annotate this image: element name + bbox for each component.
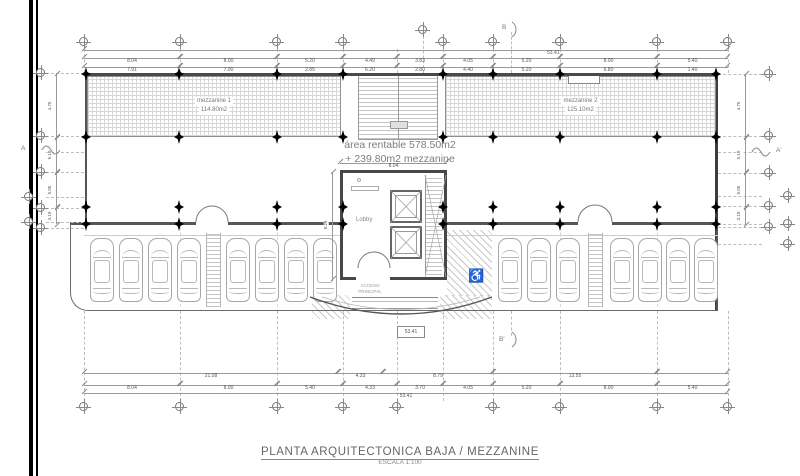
parked-car bbox=[148, 238, 172, 302]
grid-bubble bbox=[392, 402, 401, 411]
mezzanine-1-size: 114.80m2 bbox=[199, 106, 229, 115]
dimension-segment: 21.08 bbox=[84, 373, 338, 374]
grid-centerline bbox=[718, 136, 762, 137]
mezzanine-2-label: mezzanine 2 125.10m2 bbox=[446, 97, 715, 115]
drawing-title: PLANTA ARQUITECTONICA BAJA / MEZZANINE bbox=[200, 442, 600, 460]
grid-centerline bbox=[277, 311, 278, 401]
lobby-height-dimension: 8.29 bbox=[332, 172, 333, 278]
grid-centerline bbox=[84, 49, 85, 73]
dimension-segment: 5.05 bbox=[56, 172, 57, 207]
dimension-label: 5.10 bbox=[48, 149, 53, 160]
dimension-segment: 4.49 bbox=[343, 58, 397, 59]
grid-bubble bbox=[555, 37, 564, 46]
wheelchair-icon: ♿ bbox=[468, 268, 484, 284]
grid-bubble bbox=[36, 167, 45, 176]
dimension-segment: 6.80 bbox=[560, 67, 657, 68]
grid-bubble bbox=[24, 217, 33, 226]
section-marker-b: B bbox=[502, 24, 506, 31]
dimension-label: 8.29 bbox=[324, 220, 329, 231]
grid-bubble bbox=[175, 37, 184, 46]
car-windshield bbox=[180, 250, 198, 258]
dimension-segment: 8.04 bbox=[84, 58, 180, 59]
dimension-segment: 53.41 bbox=[84, 50, 728, 51]
grid-bubble bbox=[652, 37, 661, 46]
parking-walkway bbox=[588, 233, 603, 307]
car-windshield bbox=[613, 250, 631, 258]
section-marker-a: A bbox=[21, 145, 25, 152]
car-rear-window bbox=[316, 288, 334, 294]
dimension-segment: 4.75 bbox=[56, 74, 57, 137]
grid-bubble bbox=[764, 69, 773, 78]
car-windshield bbox=[229, 250, 247, 258]
lobby-core: Lobby bbox=[340, 170, 447, 280]
grid-bubble bbox=[438, 37, 447, 46]
parked-car bbox=[226, 238, 250, 302]
car-roof bbox=[181, 260, 197, 283]
dimension-segment: 2.80 bbox=[397, 67, 443, 68]
dimension-segment: 5.10 bbox=[56, 137, 57, 172]
access-label-line2: PRINCIPAL bbox=[346, 289, 394, 295]
grid-bubble bbox=[79, 37, 88, 46]
grid-centerline bbox=[718, 224, 762, 225]
car-rear-window bbox=[229, 288, 247, 294]
boxed-dimension: 53.41 bbox=[397, 326, 425, 338]
dimension-segment: 5.40 bbox=[657, 385, 728, 386]
dimension-segment: 3.83 bbox=[397, 58, 443, 59]
drawing-sheet: mezzanine 1 114.80m2 mezzanine 2 125.10m… bbox=[0, 0, 800, 476]
dimension-label: 5.05 bbox=[737, 184, 742, 195]
dimension-segment: 5.20 bbox=[277, 58, 343, 59]
grid-centerline bbox=[718, 227, 762, 228]
grid-bubble bbox=[652, 402, 661, 411]
grid-bubble bbox=[764, 222, 773, 231]
area-line-1: área rentable 578.50m2 bbox=[290, 139, 510, 153]
stall-head-line bbox=[447, 235, 718, 236]
grid-bubble bbox=[723, 37, 732, 46]
grid-centerline bbox=[718, 244, 762, 245]
section-marker-a-prime: A' bbox=[776, 147, 782, 154]
dimension-label: 5.10 bbox=[737, 149, 742, 160]
column-marker bbox=[711, 200, 721, 214]
car-rear-window bbox=[258, 288, 276, 294]
dimension-segment: 4.05 bbox=[443, 385, 493, 386]
mezzanine-2-name: mezzanine 2 bbox=[561, 97, 599, 106]
section-b-arc bbox=[512, 22, 516, 37]
car-windshield bbox=[93, 250, 111, 258]
grid-bubble bbox=[338, 402, 347, 411]
grid-centerline bbox=[46, 208, 84, 209]
car-windshield bbox=[641, 250, 659, 258]
dimension-segment: 1.40 bbox=[657, 67, 728, 68]
grid-bubble bbox=[36, 68, 45, 77]
car-roof bbox=[560, 260, 576, 283]
grid-bubble bbox=[36, 223, 45, 232]
grid-centerline bbox=[560, 311, 561, 401]
reception-chair bbox=[357, 178, 361, 182]
car-roof bbox=[614, 260, 630, 283]
car-roof bbox=[288, 260, 304, 283]
dimension-segment: 5.05 bbox=[745, 172, 746, 207]
dimension-label: 3.10 bbox=[737, 210, 742, 221]
car-roof bbox=[698, 260, 714, 283]
dimension-segment: 4.33 bbox=[343, 385, 397, 386]
dimension-segment: 8.79 bbox=[383, 373, 493, 374]
grid-centerline bbox=[46, 222, 84, 223]
wall-niche bbox=[568, 76, 600, 84]
stair-landing bbox=[390, 121, 408, 129]
grid-centerline bbox=[46, 228, 84, 229]
grid-bubble bbox=[79, 402, 88, 411]
grid-bubble bbox=[764, 201, 773, 210]
grid-bubble bbox=[783, 219, 792, 228]
car-roof bbox=[502, 260, 518, 283]
column-marker bbox=[652, 200, 662, 214]
parked-car bbox=[177, 238, 201, 302]
car-rear-window bbox=[530, 288, 548, 294]
grid-centerline bbox=[718, 74, 762, 75]
grid-centerline bbox=[84, 311, 85, 401]
rentable-area-text: área rentable 578.50m2 + 239.80m2 mezzan… bbox=[290, 139, 510, 166]
mezzanine-1-area: mezzanine 1 114.80m2 bbox=[87, 76, 341, 137]
car-windshield bbox=[258, 250, 276, 258]
car-windshield bbox=[122, 250, 140, 258]
parked-car bbox=[119, 238, 143, 302]
dimension-segment: 8.00 bbox=[560, 58, 657, 59]
dimension-segment: 4.75 bbox=[745, 74, 746, 137]
grid-bubble bbox=[418, 25, 427, 34]
dimension-segment bbox=[657, 373, 728, 374]
parking-walkway bbox=[206, 233, 221, 307]
grid-centerline bbox=[343, 311, 344, 401]
central-staircase bbox=[358, 76, 438, 140]
dimension-segment: 5.20 bbox=[493, 58, 560, 59]
car-windshield bbox=[559, 250, 577, 258]
mezzanine-1-label: mezzanine 1 114.80m2 bbox=[88, 97, 340, 115]
grid-centerline bbox=[718, 173, 762, 174]
car-rear-window bbox=[287, 288, 305, 294]
parked-car bbox=[666, 238, 690, 302]
column-marker bbox=[555, 200, 565, 214]
grid-centerline bbox=[397, 311, 398, 401]
grid-centerline bbox=[443, 311, 444, 401]
car-rear-window bbox=[122, 288, 140, 294]
grid-centerline bbox=[657, 311, 658, 401]
grid-centerline bbox=[46, 197, 84, 198]
west-double-door bbox=[196, 206, 228, 222]
car-windshield bbox=[501, 250, 519, 258]
car-roof bbox=[94, 260, 110, 283]
grid-bubble bbox=[488, 402, 497, 411]
car-rear-window bbox=[697, 288, 715, 294]
reception-desk bbox=[351, 186, 379, 191]
grid-bubble bbox=[36, 203, 45, 212]
mezzanine-1-name: mezzanine 1 bbox=[195, 97, 233, 106]
grid-bubble bbox=[488, 37, 497, 46]
car-rear-window bbox=[669, 288, 687, 294]
dimension-segment: 4.33 bbox=[338, 373, 383, 374]
dimension-segment: 7.00 bbox=[180, 67, 277, 68]
dimension-segment: 5.40 bbox=[657, 58, 728, 59]
car-roof bbox=[230, 260, 246, 283]
elevator-2 bbox=[390, 226, 422, 259]
mezzanine-2-size: 125.10m2 bbox=[565, 106, 596, 115]
car-rear-window bbox=[180, 288, 198, 294]
dimension-segment: 4.40 bbox=[443, 67, 493, 68]
grid-bubble bbox=[783, 239, 792, 248]
dimension-segment: 8.00 bbox=[180, 385, 277, 386]
column-marker bbox=[272, 200, 282, 214]
sheet-edge-line bbox=[29, 0, 33, 476]
parked-car bbox=[284, 238, 308, 302]
car-roof bbox=[670, 260, 686, 283]
car-windshield bbox=[697, 250, 715, 258]
car-roof bbox=[259, 260, 275, 283]
car-windshield bbox=[530, 250, 548, 258]
car-windshield bbox=[151, 250, 169, 258]
car-rear-window bbox=[613, 288, 631, 294]
car-rear-window bbox=[151, 288, 169, 294]
dimension-label: 4.75 bbox=[737, 100, 742, 111]
grid-bubble bbox=[36, 131, 45, 140]
car-rear-window bbox=[501, 288, 519, 294]
section-b-line bbox=[511, 311, 512, 336]
dimension-segment: 3.10 bbox=[56, 207, 57, 224]
car-roof bbox=[642, 260, 658, 283]
car-roof bbox=[123, 260, 139, 283]
dimension-segment: 13.55 bbox=[493, 373, 657, 374]
grid-bubble bbox=[272, 37, 281, 46]
mezzanine-2-area: mezzanine 2 125.10m2 bbox=[445, 76, 716, 137]
stair-treads bbox=[359, 76, 437, 139]
section-b-prime-arc bbox=[512, 332, 516, 347]
dimension-segment: 5.40 bbox=[277, 385, 343, 386]
elevator-1 bbox=[390, 190, 422, 223]
car-rear-window bbox=[559, 288, 577, 294]
car-roof bbox=[531, 260, 547, 283]
parked-car bbox=[638, 238, 662, 302]
grid-centerline bbox=[718, 206, 762, 207]
column-marker bbox=[81, 200, 91, 214]
entrance-steps bbox=[352, 297, 438, 309]
dimension-label: 4.75 bbox=[48, 100, 53, 111]
grid-centerline bbox=[46, 136, 84, 137]
east-double-door bbox=[578, 205, 612, 222]
grid-bubble bbox=[175, 402, 184, 411]
parked-car bbox=[90, 238, 114, 302]
lobby-door-opening bbox=[356, 274, 390, 280]
car-windshield bbox=[287, 250, 305, 258]
parked-car bbox=[694, 238, 718, 302]
dimension-label: 5.05 bbox=[48, 184, 53, 195]
dimension-segment: 8.00 bbox=[560, 385, 657, 386]
dimension-segment: 53.41 bbox=[84, 393, 728, 394]
grid-centerline bbox=[180, 311, 181, 401]
parked-car bbox=[610, 238, 634, 302]
car-roof bbox=[152, 260, 168, 283]
parked-car bbox=[556, 238, 580, 302]
grid-bubble bbox=[555, 402, 564, 411]
car-windshield bbox=[669, 250, 687, 258]
parked-car bbox=[527, 238, 551, 302]
parked-car bbox=[498, 238, 522, 302]
dimension-segment: 5.20 bbox=[493, 385, 560, 386]
grid-bubble bbox=[723, 402, 732, 411]
dimension-segment: 8.00 bbox=[180, 58, 277, 59]
dimension-segment: 4.05 bbox=[443, 58, 493, 59]
lobby-label: Lobby bbox=[356, 217, 372, 223]
grid-bubble bbox=[783, 191, 792, 200]
dimension-segment: 7.91 bbox=[84, 67, 180, 68]
grid-bubble bbox=[24, 192, 33, 201]
grid-bubble bbox=[764, 131, 773, 140]
column-marker bbox=[488, 200, 498, 214]
grid-bubble bbox=[764, 168, 773, 177]
dimension-segment: 3.70 bbox=[397, 385, 443, 386]
car-rear-window bbox=[93, 288, 111, 294]
drawing-scale: ESCALA 1:100 bbox=[200, 459, 600, 466]
grid-centerline bbox=[718, 196, 762, 197]
dimension-segment: 2.85 bbox=[277, 67, 343, 68]
grid-bubble bbox=[272, 402, 281, 411]
main-access-label: ACCESO PRINCIPAL bbox=[346, 283, 394, 296]
area-line-2: + 239.80m2 mezzanine bbox=[290, 153, 510, 167]
car-rear-window bbox=[641, 288, 659, 294]
column-marker bbox=[174, 200, 184, 214]
lobby-staircase bbox=[425, 175, 442, 275]
grid-centerline bbox=[46, 73, 84, 74]
dimension-segment: 8.04 bbox=[84, 385, 180, 386]
parked-car bbox=[313, 238, 337, 302]
grid-centerline bbox=[493, 311, 494, 401]
dimension-segment: 5.20 bbox=[493, 67, 560, 68]
section-marker-b-prime: B' bbox=[499, 336, 505, 343]
dimension-segment: 6.20 bbox=[343, 67, 397, 68]
dimension-segment: 5.10 bbox=[745, 137, 746, 172]
grid-bubble bbox=[338, 37, 347, 46]
grid-centerline bbox=[46, 172, 84, 173]
dimension-segment: 3.10 bbox=[745, 207, 746, 224]
dimension-label: 3.10 bbox=[48, 210, 53, 221]
title-text: PLANTA ARQUITECTONICA BAJA / MEZZANINE bbox=[261, 446, 539, 460]
parked-car bbox=[255, 238, 279, 302]
